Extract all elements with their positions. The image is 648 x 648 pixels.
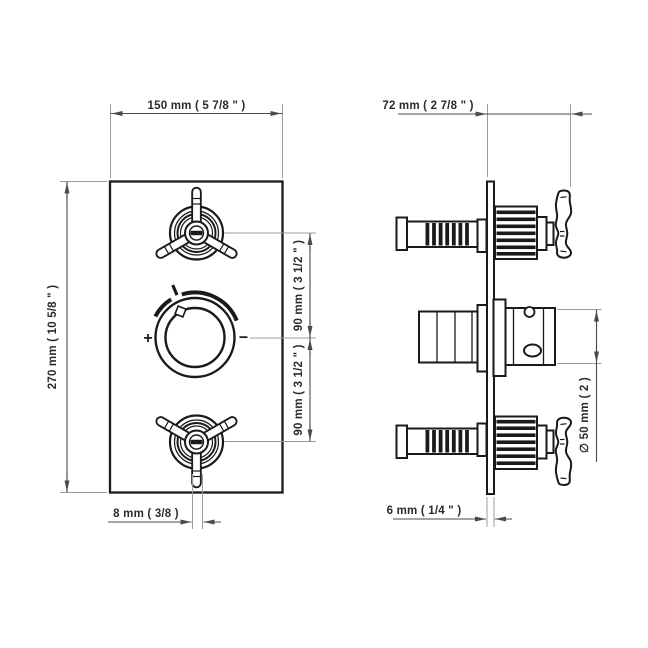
knob-button-detail [525,307,535,317]
dim-plate-thickness-label: 6 mm ( 1/4 " ) [387,505,462,517]
dim-spacing-upper-label: 90 mm ( 3 1/2 " ) [293,240,305,331]
dim-width-label: 150 mm ( 5 7/8 " ) [148,100,246,112]
technical-drawing-canvas: + − [0,0,648,648]
dim-spacing-lower-label: 90 mm ( 3 1/2 " ) [293,344,305,435]
valve-dimension-diagram: + − [0,0,648,648]
side-view [397,182,572,495]
knob-face-detail [524,345,541,357]
knob-minus-label: − [239,330,248,347]
knob-stop-marker [175,306,186,317]
dim-lever-offset-label: 8 mm ( 3/8 ) [113,508,179,520]
dim-knob-diameter-label: ∅ 50 mm ( 2 ) [579,377,591,453]
dim-height-label: 270 mm ( 10 5/8 " ) [47,285,59,390]
knob-plus-label: + [143,330,152,347]
dim-depth-label: 72 mm ( 2 7/8 " ) [382,100,473,112]
